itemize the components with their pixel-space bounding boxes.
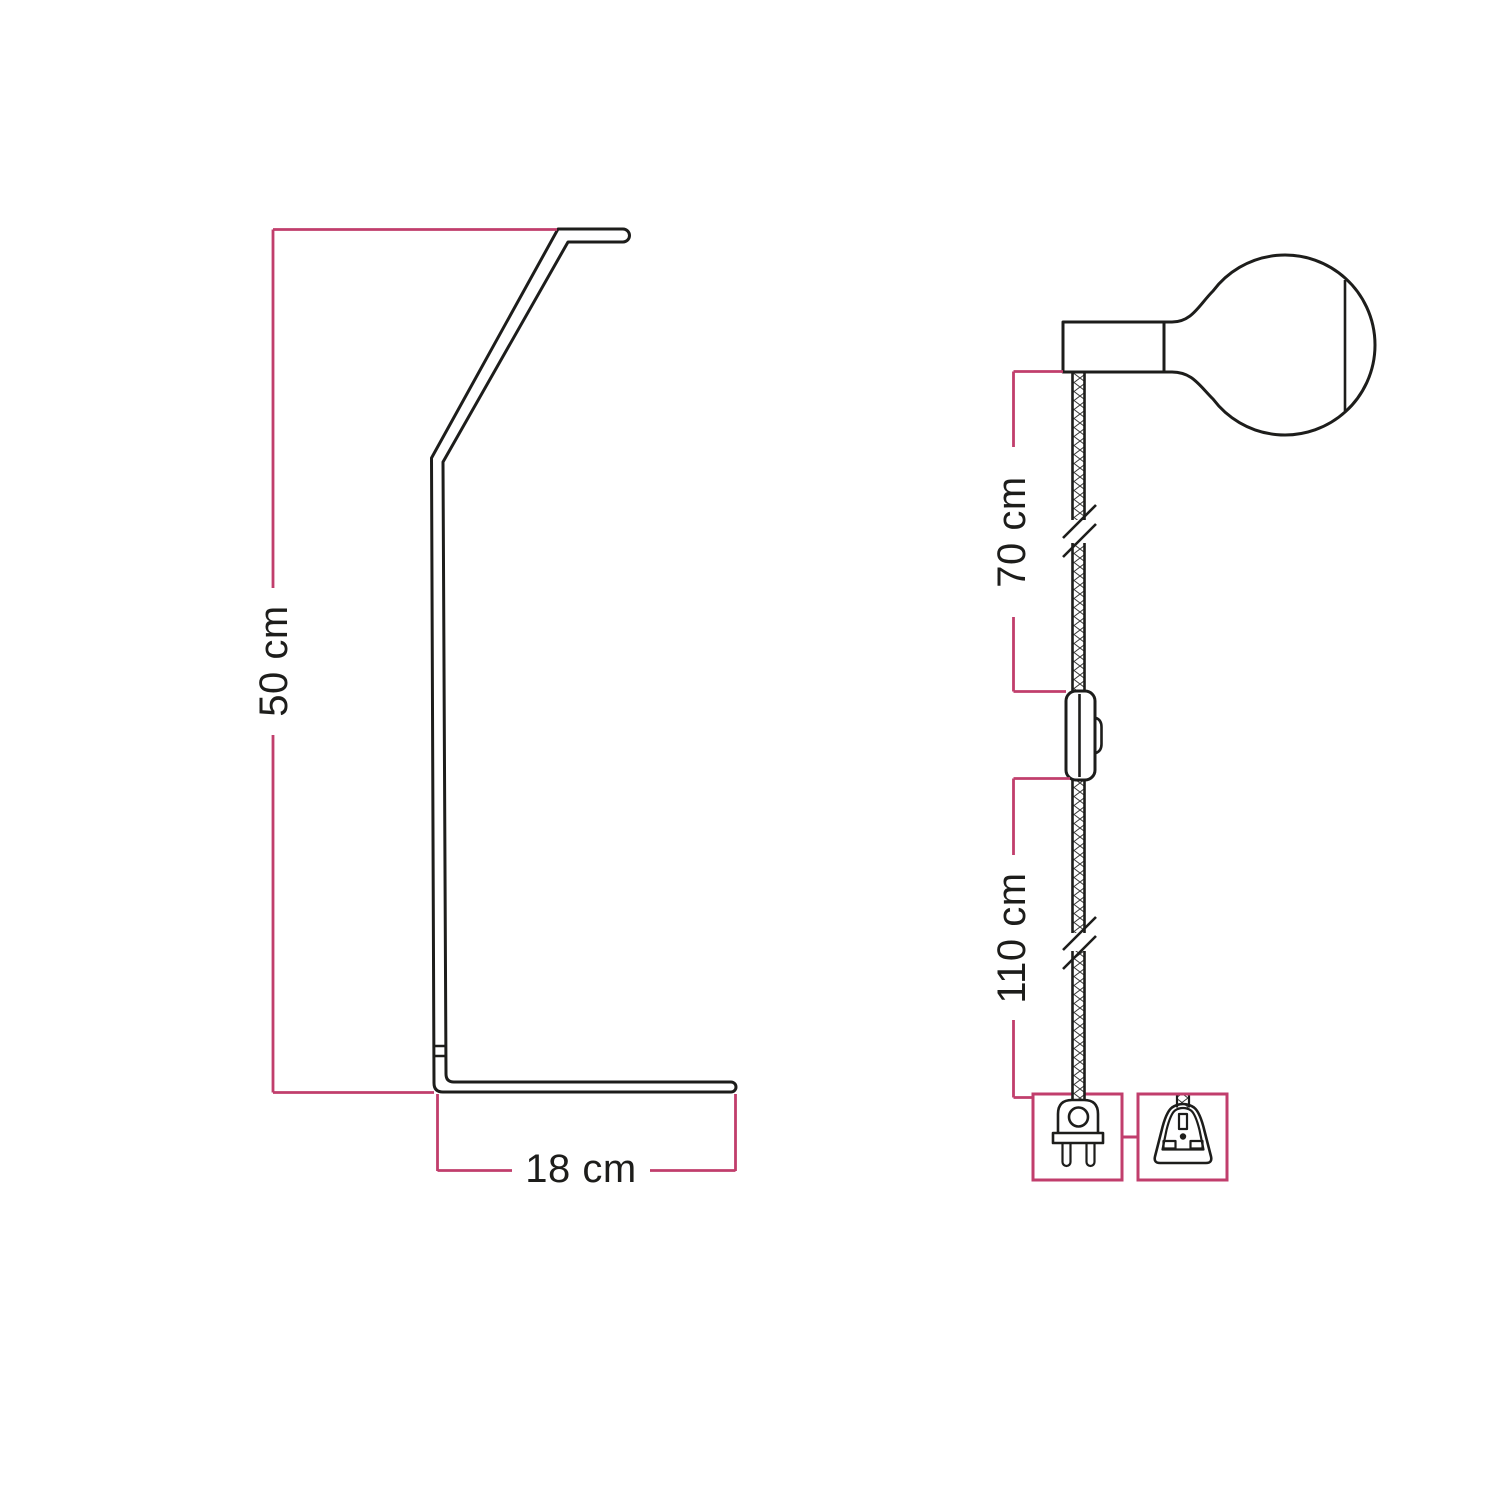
pendant-lamp-figure: 70 cm 110 cm xyxy=(990,255,1375,1180)
eu-plug-circle xyxy=(1069,1108,1088,1127)
eu-plug-body xyxy=(1058,1100,1098,1133)
upper-cable-dimension: 70 cm xyxy=(990,372,1066,692)
uk-plug-neutral-pin-hole xyxy=(1191,1141,1203,1149)
globe-bulb xyxy=(1164,255,1375,435)
stand-height-dimension: 50 cm xyxy=(252,230,557,1093)
plug-options xyxy=(1033,1094,1227,1180)
upper-cable-label: 70 cm xyxy=(990,476,1034,587)
uk-plug-earth-pin-hole xyxy=(1179,1114,1187,1129)
stand-outline xyxy=(432,229,737,1092)
eu-two-pin-plug-icon xyxy=(1053,1100,1103,1166)
inline-switch-icon xyxy=(1066,691,1102,780)
stand-height-label: 50 cm xyxy=(252,605,296,716)
stand-base-label: 18 cm xyxy=(525,1147,636,1191)
lamp-holder-with-globe-bulb-icon xyxy=(1063,255,1375,435)
lower-cable-dimension: 110 cm xyxy=(990,779,1070,1098)
lower-cable-label: 110 cm xyxy=(990,872,1034,1003)
eu-plug-pins xyxy=(1063,1143,1095,1166)
stand-profile-figure: 50 cm 18 cm xyxy=(252,229,736,1191)
lamp-socket xyxy=(1063,322,1164,372)
diagram-svg: 50 cm 18 cm xyxy=(0,0,1500,1500)
uk-plug-center-dot xyxy=(1180,1133,1186,1139)
uk-three-pin-plug-icon xyxy=(1155,1096,1212,1164)
uk-plug-live-pin-hole xyxy=(1164,1141,1176,1149)
eu-plug-flange xyxy=(1053,1133,1103,1143)
stand-base-dimension: 18 cm xyxy=(438,1094,736,1191)
dimension-diagram: 50 cm 18 cm xyxy=(0,0,1500,1500)
